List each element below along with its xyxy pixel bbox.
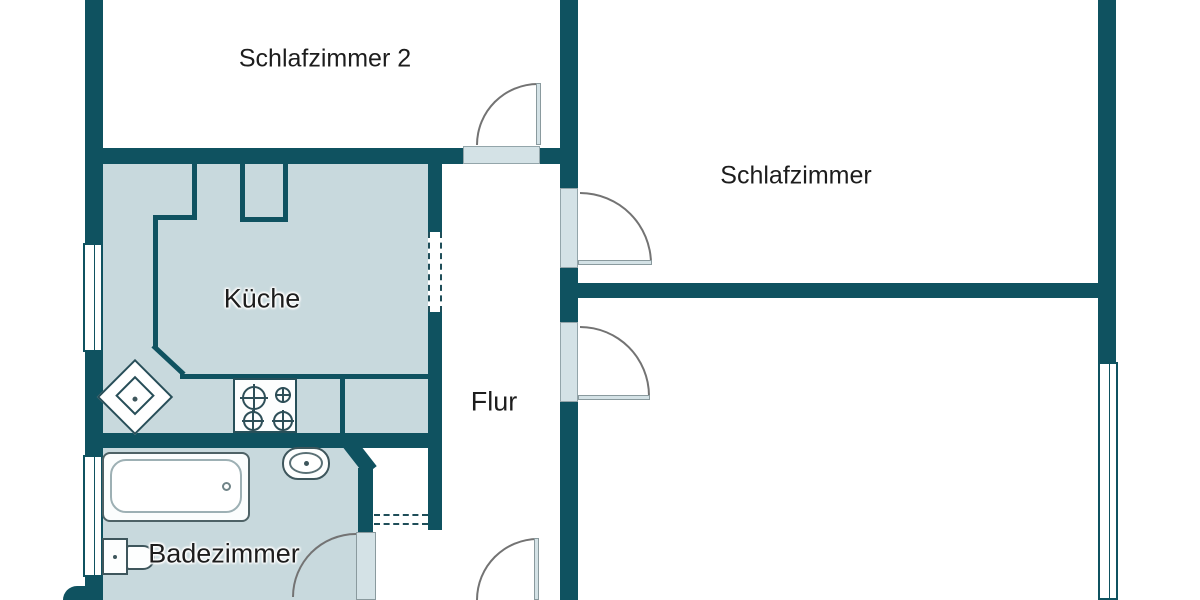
- hall-right-wall: [560, 0, 578, 188]
- door-opening-bedroom2: [463, 146, 540, 164]
- room-label-schlafzimmer: Schlafzimmer: [720, 162, 871, 191]
- kitchen-counter-front-line: [180, 374, 428, 379]
- window-pane-line: [94, 457, 95, 575]
- window-pane-line: [1109, 364, 1110, 598]
- kitchen-right-wall: [428, 164, 442, 232]
- floor-plan-canvas: Schlafzimmer 2 Schlafzimmer Küche Flur B…: [0, 0, 1200, 600]
- door-leaf-bedroom2: [536, 83, 541, 145]
- hall-right-wall: [560, 402, 578, 600]
- right-window: [1098, 362, 1118, 600]
- room-label-flur: Flur: [471, 387, 518, 418]
- kitchen-bathroom-wall: [85, 433, 442, 448]
- kitchen-counter-line: [192, 164, 197, 220]
- bedroom-divider-wall: [578, 283, 1116, 298]
- left-outer-wall-curve: [63, 586, 103, 600]
- stove-burner: [242, 386, 266, 410]
- door-leaf-bathroom: [356, 532, 376, 600]
- washbasin: [282, 447, 330, 480]
- kitchen-right-wall: [428, 312, 442, 448]
- door-opening-lower-room: [560, 322, 578, 402]
- stove-burner: [275, 387, 291, 403]
- bedroom2-bottom-wall: [85, 148, 463, 164]
- niche-dashed-line: [374, 514, 428, 516]
- bathroom-right-wall: [358, 468, 373, 532]
- toilet-tank: [102, 538, 128, 575]
- niche-dashed-line: [374, 523, 428, 525]
- door-opening-bedroom: [560, 188, 578, 268]
- room-label-badezimmer: Badezimmer: [148, 539, 300, 570]
- door-arc-entrance: [476, 538, 538, 600]
- room-label-kueche: Küche: [224, 284, 301, 315]
- bathtub-drain: [222, 482, 231, 491]
- window-pane-line: [94, 245, 95, 350]
- kitchen-counter-line: [153, 215, 197, 220]
- bathroom-window: [83, 455, 103, 577]
- kitchen-counter-divider: [340, 379, 345, 433]
- stove-burner: [273, 411, 293, 431]
- kitchen-pass-through: [428, 232, 442, 312]
- wall-shaft-notch: [240, 164, 288, 222]
- niche-right-wall: [428, 448, 442, 530]
- door-arc-lower-room: [580, 326, 650, 396]
- door-leaf-entrance: [534, 538, 539, 600]
- bathtub: [102, 452, 250, 522]
- stove-burner: [243, 411, 263, 431]
- toilet-tank-dot: [113, 555, 117, 559]
- door-leaf-bedroom: [578, 260, 652, 265]
- hall-right-wall: [560, 268, 578, 322]
- room-label-schlafzimmer2: Schlafzimmer 2: [239, 45, 411, 74]
- left-outer-wall: [85, 0, 103, 243]
- right-outer-wall: [1098, 0, 1116, 362]
- kitchen-counter-line: [153, 215, 158, 348]
- stove: [233, 378, 297, 433]
- door-leaf-lower-room: [578, 395, 650, 400]
- washbasin-dot: [304, 461, 309, 466]
- door-arc-bedroom2: [476, 83, 538, 145]
- kitchen-window: [83, 243, 103, 352]
- door-arc-bedroom: [580, 192, 652, 264]
